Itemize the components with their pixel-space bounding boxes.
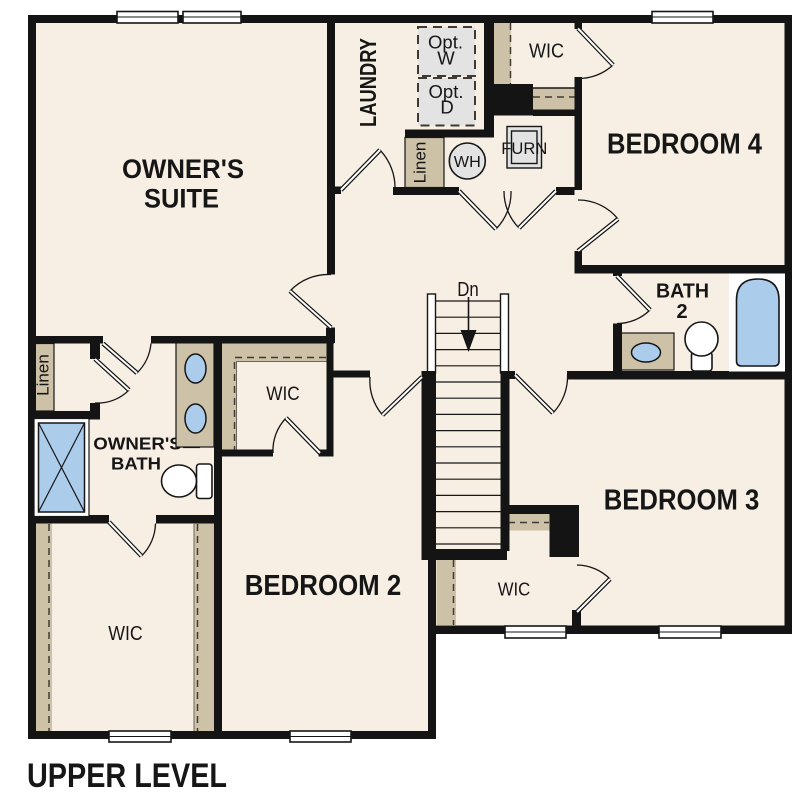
svg-text:BEDROOM 3: BEDROOM 3 <box>604 485 760 517</box>
svg-text:Dn: Dn <box>457 279 479 301</box>
svg-text:WH: WH <box>454 154 481 171</box>
svg-text:OWNER'S: OWNER'S <box>122 154 244 184</box>
svg-text:BEDROOM 2: BEDROOM 2 <box>245 570 402 602</box>
svg-text:Linen: Linen <box>34 354 53 396</box>
svg-text:BEDROOM 4: BEDROOM 4 <box>607 129 762 161</box>
svg-text:WIC: WIC <box>529 41 564 63</box>
svg-text:D: D <box>440 97 453 118</box>
svg-text:Linen: Linen <box>411 142 430 184</box>
svg-text:LAUNDRY: LAUNDRY <box>355 38 381 127</box>
svg-text:WIC: WIC <box>266 383 300 405</box>
svg-text:OWNER'S: OWNER'S <box>93 434 182 454</box>
svg-text:UPPER LEVEL: UPPER LEVEL <box>27 757 227 795</box>
svg-text:FURN: FURN <box>501 139 547 158</box>
svg-text:WIC: WIC <box>108 623 143 645</box>
svg-text:2: 2 <box>676 301 687 323</box>
svg-text:SUITE: SUITE <box>144 184 219 214</box>
svg-text:BATH: BATH <box>111 454 161 474</box>
svg-text:W: W <box>437 48 455 69</box>
svg-text:BATH: BATH <box>656 281 709 303</box>
svg-text:WIC: WIC <box>498 579 531 600</box>
